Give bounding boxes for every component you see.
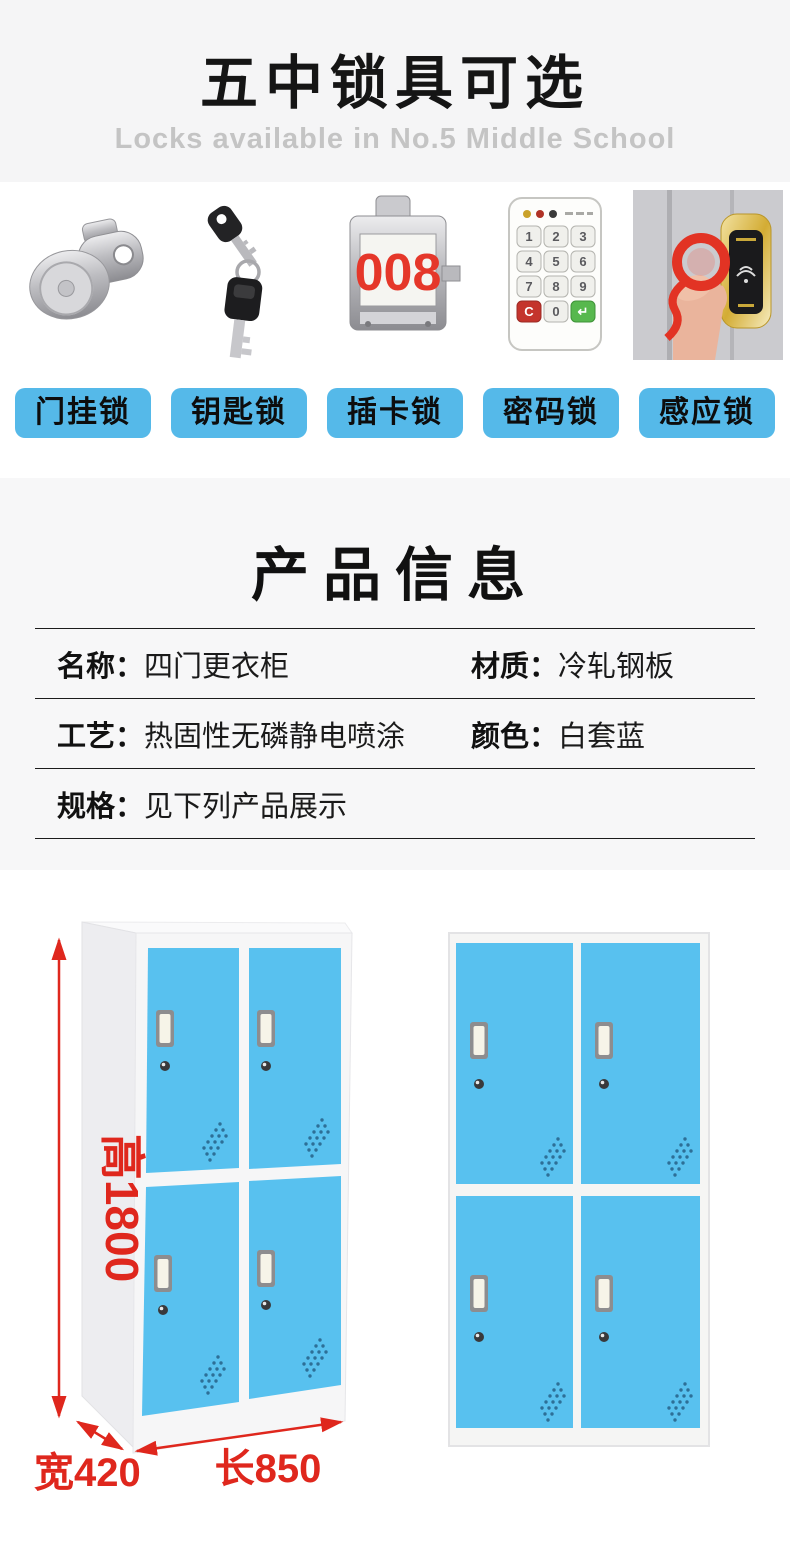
door-handle: [257, 1250, 275, 1287]
lock-photo-rfid: [632, 186, 784, 364]
lock-label-rfid: 感应锁: [639, 388, 775, 438]
card-counter: 008: [355, 244, 442, 302]
card-lock-icon: 008: [320, 186, 470, 364]
bottom-spacer: [0, 1530, 790, 1567]
lock-photos-row: 008: [0, 182, 790, 364]
lock-labels-row: 门挂锁 钥匙锁 插卡锁 密码锁 感应锁: [0, 388, 790, 438]
info-value: 四门更衣柜: [144, 643, 289, 685]
keypad-key: 2: [552, 229, 559, 244]
keypad-key: 7: [525, 279, 532, 294]
lock-label-key: 钥匙锁: [171, 388, 307, 438]
info-process: 工艺： 热固性无磷静电喷涂: [35, 713, 467, 755]
keyhole-icon: [474, 1079, 484, 1089]
keyhole-icon: [261, 1061, 271, 1071]
keypad-key: 3: [579, 229, 586, 244]
page-subtitle: Locks available in No.5 Middle School: [0, 123, 790, 156]
length-dimension-label: 长850: [215, 1447, 322, 1491]
keypad-lock-icon: 1 2 3 4 5 6 7 8 9 C 0 ↵: [477, 186, 627, 364]
keypad-key: C: [524, 304, 534, 319]
header-section: 五中锁具可选 Locks available in No.5 Middle Sc…: [0, 0, 790, 182]
locker-front-view: [448, 932, 710, 1447]
keys-icon: [164, 186, 314, 364]
keypad-key: 5: [552, 254, 559, 269]
product-info-table: 名称： 四门更衣柜 材质： 冷轧钢板 工艺： 热固性无磷静电喷涂 颜色： 白套蓝…: [35, 628, 755, 839]
info-label: 名称：: [57, 643, 144, 685]
page-title: 五中锁具可选: [0, 46, 790, 121]
info-name: 名称： 四门更衣柜: [35, 643, 467, 685]
info-color: 颜色： 白套蓝: [467, 713, 755, 755]
lock-label-door-hasp: 门挂锁: [15, 388, 151, 438]
door-handle: [470, 1275, 488, 1312]
product-showcase-section: 高1800 宽420 长850: [0, 870, 790, 1530]
info-value: 白套蓝: [558, 713, 645, 755]
keypad-key: 8: [552, 279, 559, 294]
info-label: 规格：: [57, 783, 144, 825]
product-info-title: 产品信息: [0, 528, 790, 612]
info-value: 冷轧钢板: [558, 643, 674, 685]
lock-photo-keypad: 1 2 3 4 5 6 7 8 9 C 0 ↵: [476, 186, 628, 364]
table-row: 规格： 见下列产品展示: [35, 769, 755, 839]
lock-types-section: 008: [0, 182, 790, 478]
keyhole-icon: [599, 1332, 609, 1342]
info-label: 材质：: [471, 643, 558, 685]
keypad-key: 0: [552, 304, 559, 319]
keyhole-icon: [599, 1079, 609, 1089]
info-label: 工艺：: [57, 713, 144, 755]
keyhole-icon: [474, 1332, 484, 1342]
door-handle: [470, 1022, 488, 1059]
keyhole-icon: [158, 1305, 168, 1315]
keyhole-icon: [160, 1061, 170, 1071]
width-dimension-label: 宽420: [34, 1451, 141, 1495]
info-label: 颜色：: [471, 713, 558, 755]
info-spec: 规格： 见下列产品展示: [35, 783, 467, 825]
lock-photo-door-hasp: [6, 186, 158, 364]
info-material: 材质： 冷轧钢板: [467, 643, 755, 685]
height-dimension-label: 高1800: [96, 1134, 148, 1282]
info-value: 热固性无磷静电喷涂: [144, 713, 405, 755]
lock-photo-key: [163, 186, 315, 364]
locker-3d-view: 高1800 宽420 长850: [0, 870, 400, 1530]
keypad-key: 1: [525, 229, 532, 244]
table-row: 名称： 四门更衣柜 材质： 冷轧钢板: [35, 629, 755, 699]
keypad-key: ↵: [577, 304, 588, 319]
keyhole-icon: [261, 1300, 271, 1310]
lock-label-card: 插卡锁: [327, 388, 463, 438]
door-handle: [257, 1010, 275, 1047]
keypad-key: 6: [579, 254, 586, 269]
door-handle: [595, 1275, 613, 1312]
keypad-key: 9: [579, 279, 586, 294]
product-info-section: 产品信息 名称： 四门更衣柜 材质： 冷轧钢板 工艺： 热固性无磷静电喷涂 颜色…: [0, 478, 790, 870]
table-row: 工艺： 热固性无磷静电喷涂 颜色： 白套蓝: [35, 699, 755, 769]
door-handle: [595, 1022, 613, 1059]
door-handle: [154, 1255, 172, 1292]
lock-photo-card: 008: [319, 186, 471, 364]
info-value: 见下列产品展示: [144, 783, 347, 825]
cam-lock-icon: [7, 186, 157, 364]
lock-label-password: 密码锁: [483, 388, 619, 438]
door-handle: [156, 1010, 174, 1047]
rfid-lock-icon: [633, 186, 783, 364]
keypad-key: 4: [525, 254, 533, 269]
